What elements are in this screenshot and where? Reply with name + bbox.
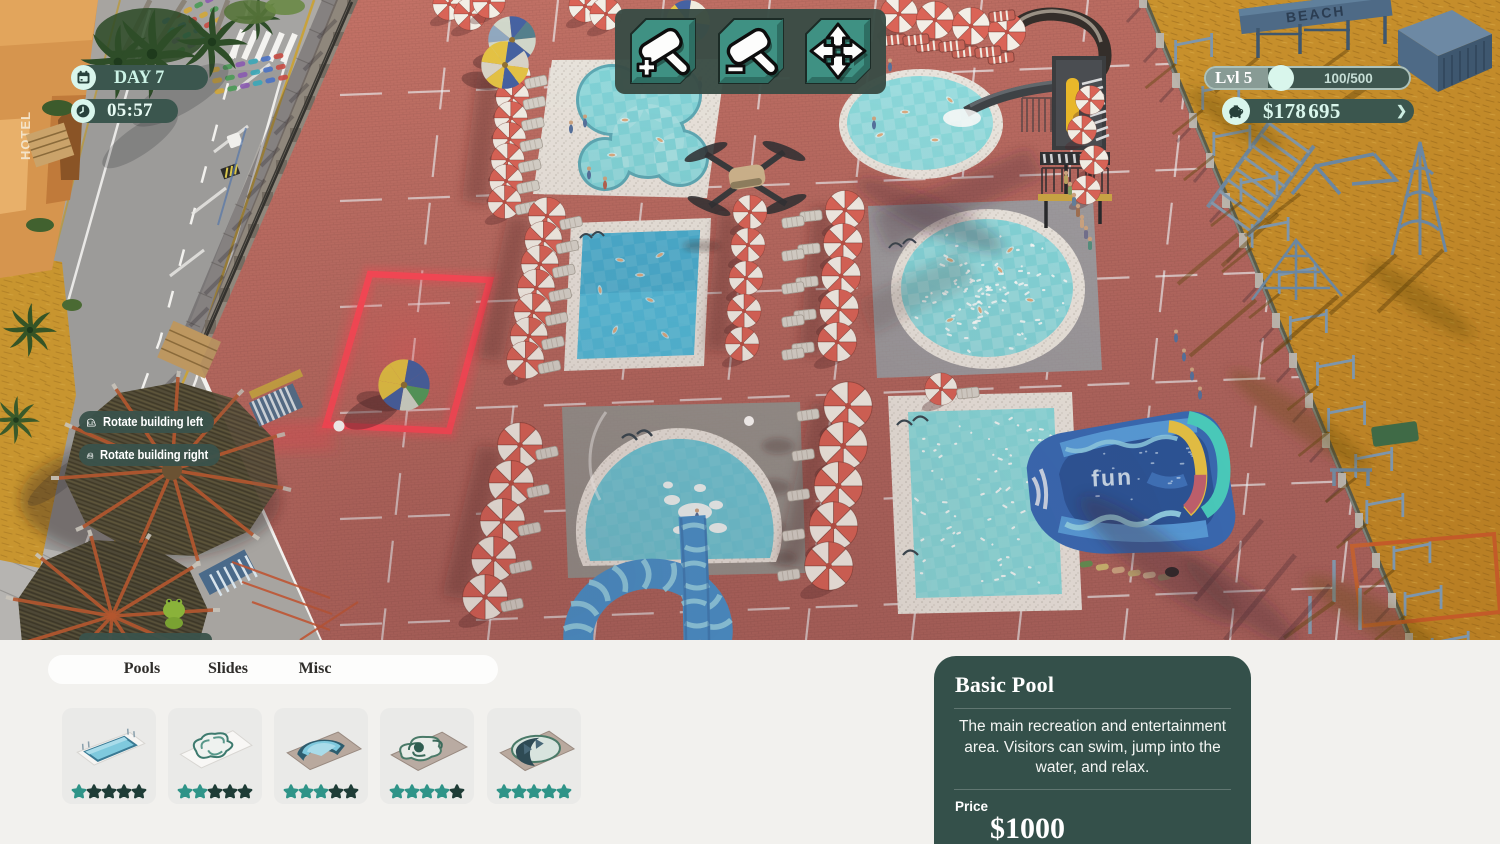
svg-text:L2: L2	[88, 420, 94, 426]
svg-text:R2: R2	[88, 453, 92, 457]
